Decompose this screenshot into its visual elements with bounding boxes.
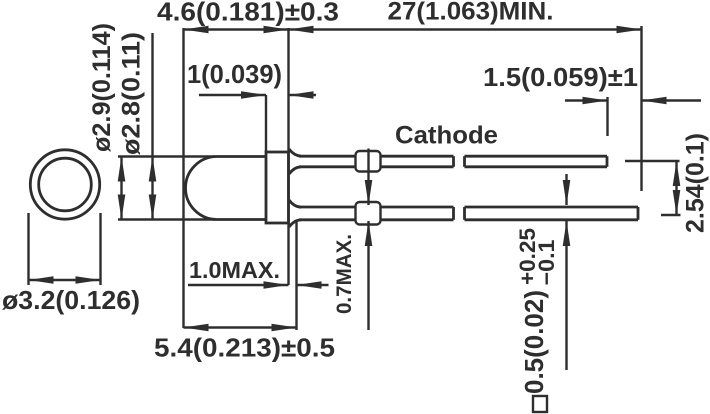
svg-text:1.0MAX.: 1.0MAX. <box>189 257 280 283</box>
svg-text:ø3.2(0.126): ø3.2(0.126) <box>2 285 140 315</box>
svg-text:ø2.8(0.11): ø2.8(0.11) <box>118 32 146 155</box>
svg-text:5.4(0.213)±0.5: 5.4(0.213)±0.5 <box>154 333 335 363</box>
svg-text:27(1.063)MIN.: 27(1.063)MIN. <box>388 0 554 26</box>
svg-text:ø2.9(0.114): ø2.9(0.114) <box>88 23 116 152</box>
svg-text:4.6(0.181)±0.3: 4.6(0.181)±0.3 <box>157 0 339 27</box>
svg-text:2.54(0.1): 2.54(0.1) <box>682 133 710 233</box>
svg-text:−0.1: −0.1 <box>534 240 559 286</box>
svg-text:1.5(0.059)±1: 1.5(0.059)±1 <box>483 62 638 92</box>
svg-text:0.7MAX.: 0.7MAX. <box>333 234 356 314</box>
svg-text:1(0.039): 1(0.039) <box>187 59 282 89</box>
svg-text:0.5(0.02): 0.5(0.02) <box>519 290 549 394</box>
svg-text:Cathode: Cathode <box>395 122 498 150</box>
